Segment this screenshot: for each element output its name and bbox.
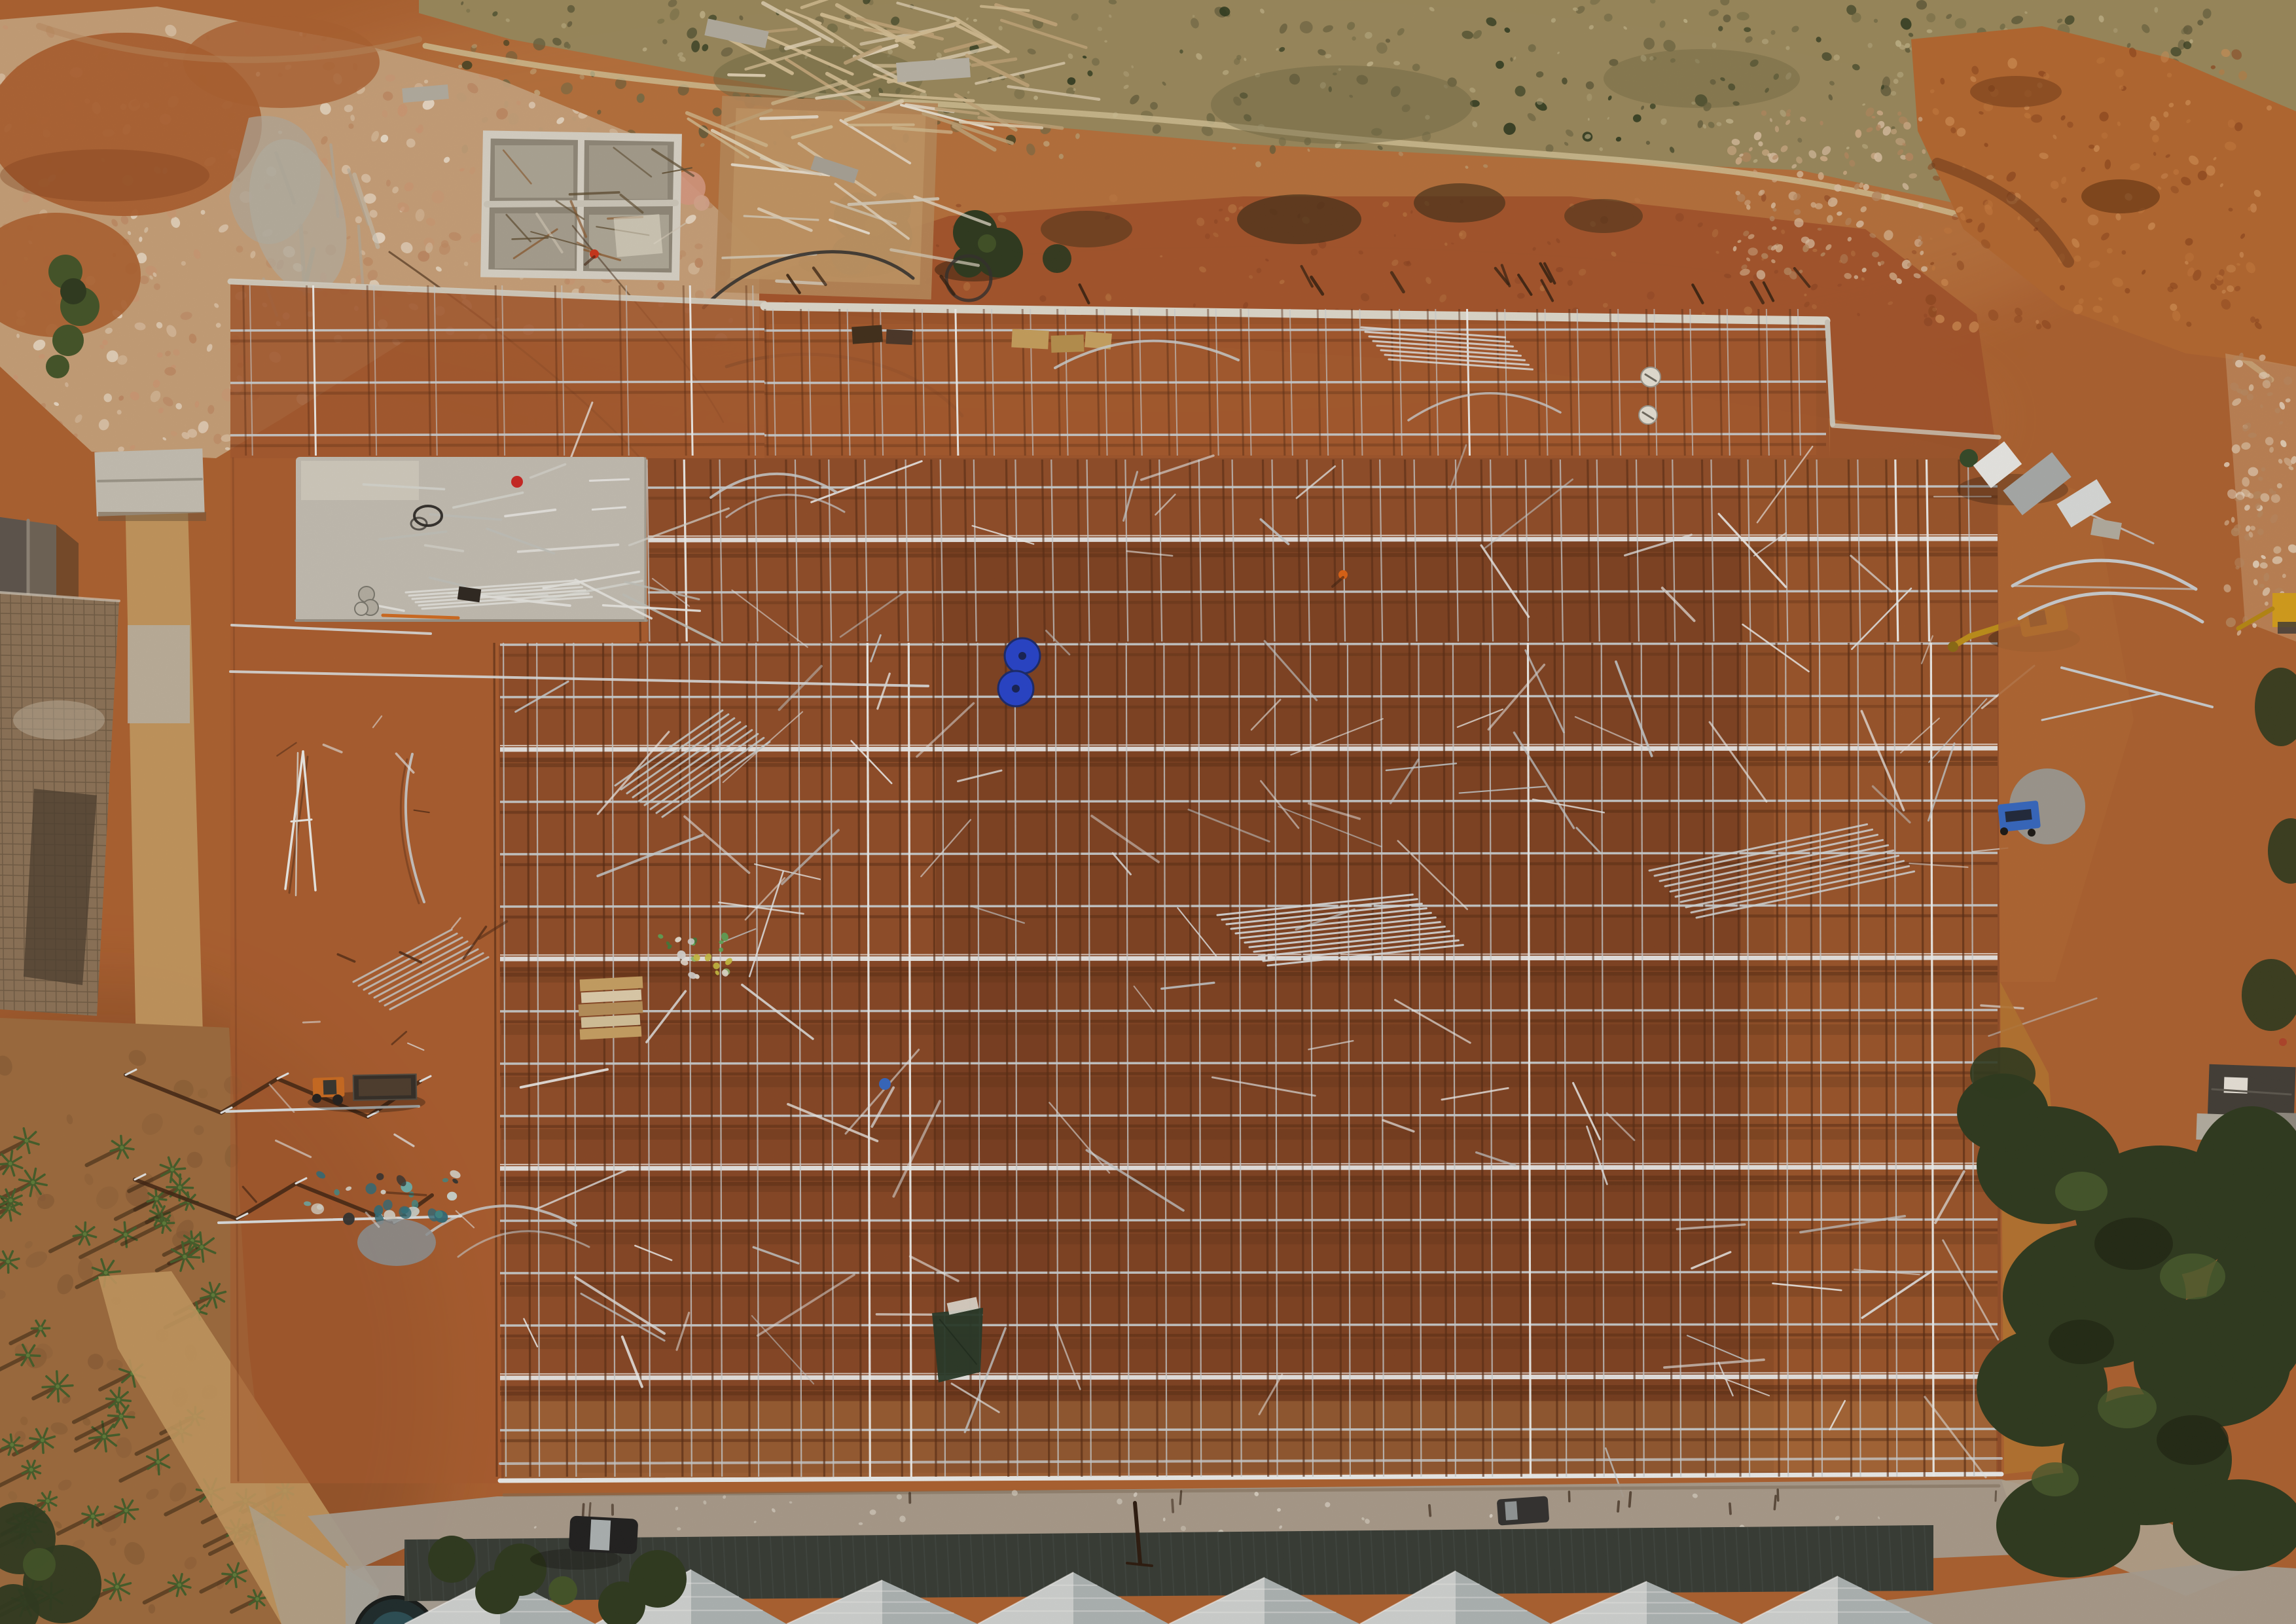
film-grain-overlay <box>0 0 2296 1624</box>
aerial-photo-construction-site <box>0 0 2296 1624</box>
photo-canvas <box>0 0 2296 1624</box>
scene <box>0 0 2296 1624</box>
